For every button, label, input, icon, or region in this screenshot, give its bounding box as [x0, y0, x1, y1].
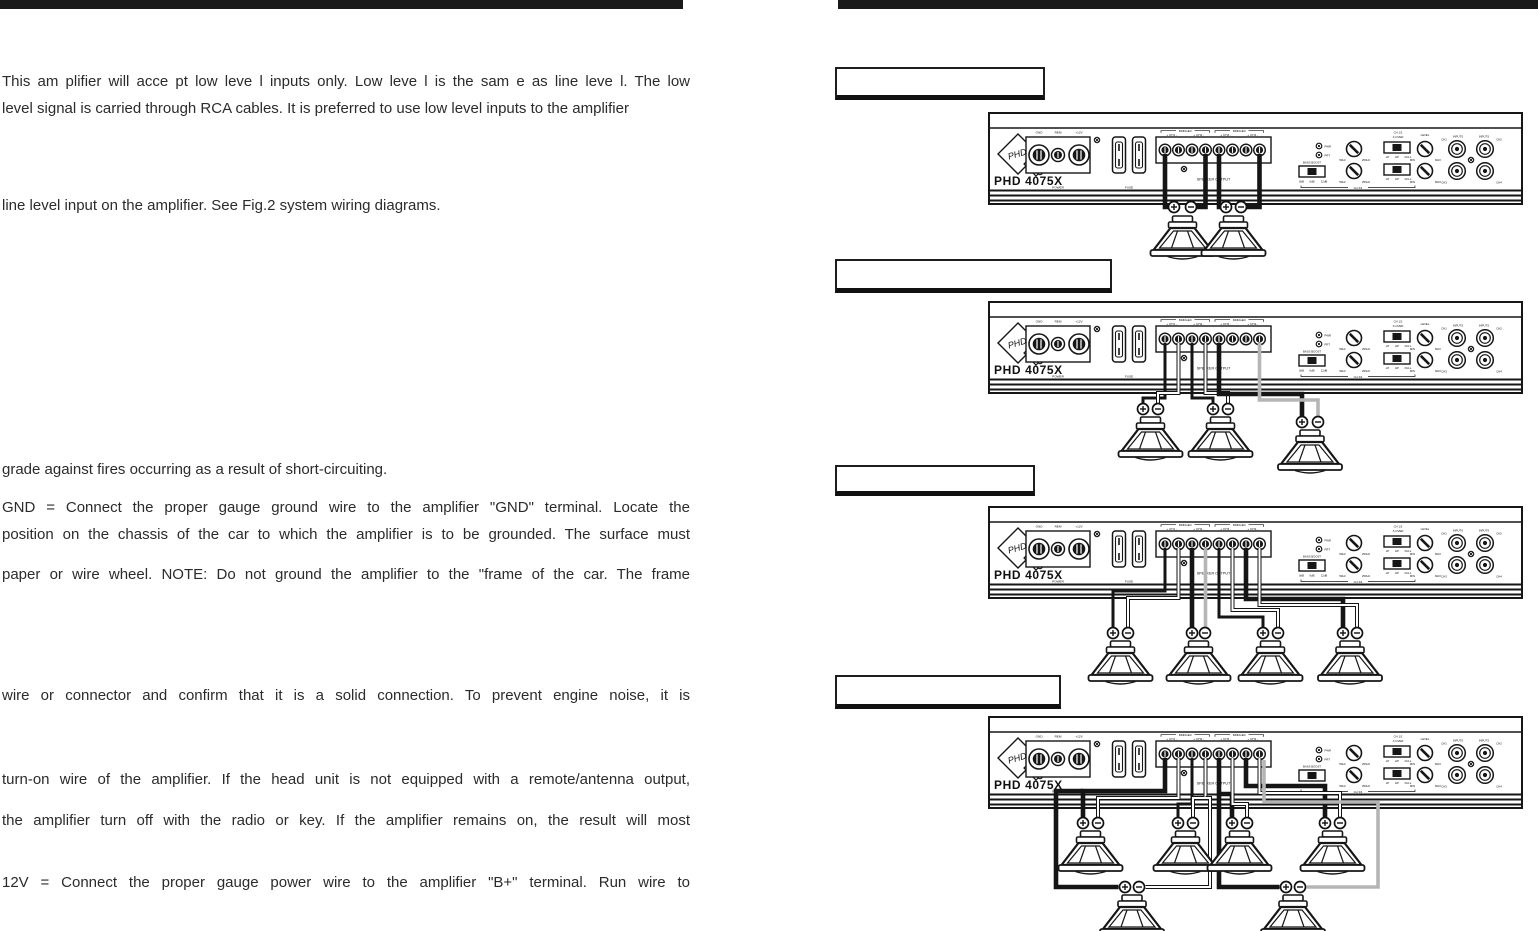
- body-text-line: grade against fires occurring as a resul…: [2, 460, 690, 480]
- wiring-diagram-4: [988, 716, 1538, 931]
- figure-label-box-2: [835, 259, 1112, 293]
- speaker-icon: [1189, 417, 1253, 460]
- minus-terminal-icon: [1123, 628, 1134, 639]
- body-text-line: the amplifier turn off with the radio or…: [2, 811, 690, 831]
- plus-terminal-icon: [1297, 417, 1308, 428]
- subwoofer-icon: [1278, 430, 1342, 473]
- body-text-line: level signal is carried through RCA cabl…: [2, 99, 690, 119]
- plus-terminal-icon: [1338, 628, 1349, 639]
- subwoofer-icon: [1261, 895, 1325, 931]
- figure-label-box-1: [835, 67, 1045, 100]
- speaker-icon: [1119, 417, 1183, 460]
- plus-terminal-icon: [1138, 404, 1149, 415]
- plus-terminal-icon: [1208, 404, 1219, 415]
- body-text-line: line level input on the amplifier. See F…: [2, 196, 690, 216]
- body-text-line: wire or connector and confirm that it is…: [2, 686, 690, 706]
- plus-terminal-icon: [1169, 202, 1180, 213]
- plus-terminal-icon: [1078, 818, 1089, 829]
- plus-terminal-icon: [1227, 818, 1238, 829]
- body-text-line: 12V = Connect the proper gauge power wir…: [2, 873, 690, 893]
- minus-terminal-icon: [1188, 818, 1199, 829]
- manual-page: This am plifier will acce pt low leve l …: [0, 0, 1538, 931]
- minus-terminal-icon: [1186, 202, 1197, 213]
- speaker-icon: [1059, 831, 1123, 874]
- top-bar-left: [0, 0, 683, 9]
- body-text-line: paper or wire wheel. NOTE: Do not ground…: [2, 565, 690, 585]
- amplifier-diagram: [989, 302, 1522, 393]
- minus-terminal-icon: [1335, 818, 1346, 829]
- minus-terminal-icon: [1134, 882, 1145, 893]
- top-bar-right: [838, 0, 1538, 9]
- wiring-diagram-1: [988, 112, 1538, 262]
- minus-terminal-icon: [1223, 404, 1234, 415]
- plus-terminal-icon: [1258, 628, 1269, 639]
- wiring-diagram-2: [988, 301, 1538, 474]
- plus-terminal-icon: [1320, 818, 1331, 829]
- plus-terminal-icon: [1187, 628, 1198, 639]
- minus-terminal-icon: [1093, 818, 1104, 829]
- minus-terminal-icon: [1313, 417, 1324, 428]
- minus-terminal-icon: [1295, 882, 1306, 893]
- minus-terminal-icon: [1242, 818, 1253, 829]
- speaker-icon: [1239, 641, 1303, 684]
- body-text-line: This am plifier will acce pt low leve l …: [2, 72, 690, 92]
- plus-terminal-icon: [1173, 818, 1184, 829]
- body-text-line: turn-on wire of the amplifier. If the he…: [2, 770, 690, 790]
- amplifier-diagram: [989, 113, 1522, 204]
- amplifier-diagram: [989, 717, 1522, 808]
- wiring-diagram-3: [988, 506, 1538, 686]
- body-text-line: GND = Connect the proper gauge ground wi…: [2, 498, 690, 518]
- speaker-icon: [1089, 641, 1153, 684]
- minus-terminal-icon: [1352, 628, 1363, 639]
- plus-terminal-icon: [1108, 628, 1119, 639]
- minus-terminal-icon: [1153, 404, 1164, 415]
- amplifier-diagram: [989, 507, 1522, 598]
- plus-terminal-icon: [1120, 882, 1131, 893]
- speaker-icon: [1318, 641, 1382, 684]
- speaker-icon: [1202, 216, 1266, 259]
- plus-terminal-icon: [1281, 882, 1292, 893]
- minus-terminal-icon: [1200, 628, 1211, 639]
- speaker-icon: [1167, 641, 1231, 684]
- subwoofer-icon: [1100, 895, 1164, 931]
- body-text-line: position on the chassis of the car to wh…: [2, 525, 690, 545]
- speaker-icon: [1301, 831, 1365, 874]
- plus-terminal-icon: [1221, 202, 1232, 213]
- minus-terminal-icon: [1236, 202, 1247, 213]
- minus-terminal-icon: [1273, 628, 1284, 639]
